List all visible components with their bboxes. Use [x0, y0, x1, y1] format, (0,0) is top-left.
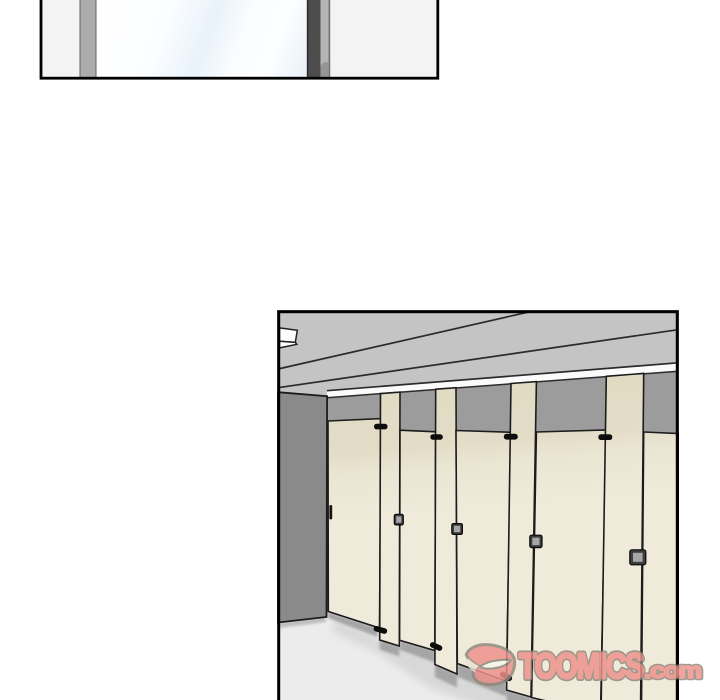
svg-text:TOOMICS: TOOMICS: [519, 646, 644, 686]
svg-text:.com: .com: [644, 658, 702, 683]
